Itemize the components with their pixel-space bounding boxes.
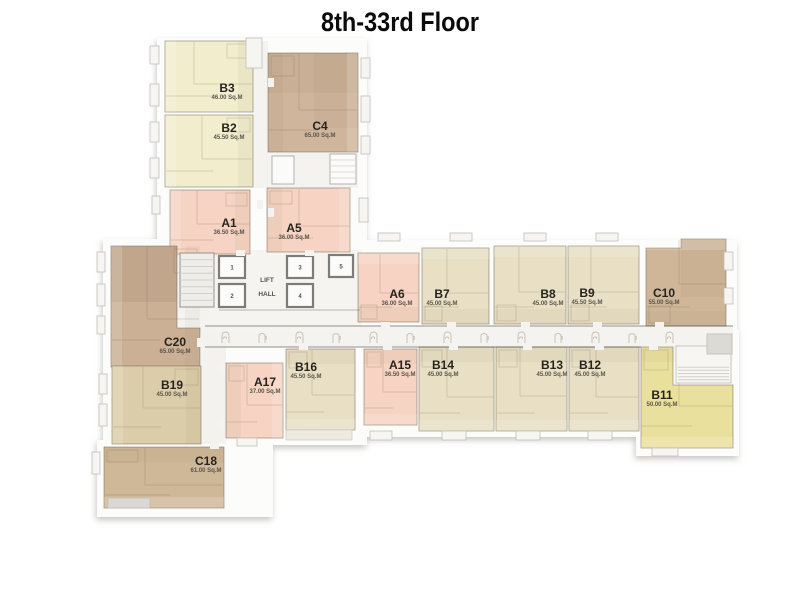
svg-text:B12: B12: [579, 358, 601, 372]
svg-text:HALL: HALL: [258, 291, 275, 298]
svg-text:65.00 Sq.M: 65.00 Sq.M: [159, 349, 190, 355]
svg-text:B11: B11: [651, 388, 673, 402]
svg-text:36.50 Sq.M: 36.50 Sq.M: [384, 372, 415, 378]
svg-text:61.00 Sq.M: 61.00 Sq.M: [190, 468, 221, 474]
svg-text:55.00 Sq.M: 55.00 Sq.M: [648, 300, 679, 306]
svg-text:8th-33rd Floor: 8th-33rd Floor: [321, 7, 479, 37]
svg-text:A6: A6: [389, 287, 405, 301]
svg-text:B9: B9: [579, 286, 595, 300]
svg-text:B13: B13: [541, 358, 563, 372]
svg-text:A17: A17: [254, 375, 276, 389]
svg-text:45.50 Sq.M: 45.50 Sq.M: [213, 135, 244, 141]
svg-text:37.00 Sq.M: 37.00 Sq.M: [249, 389, 280, 395]
svg-text:B19: B19: [161, 378, 183, 392]
svg-text:45.50 Sq.M: 45.50 Sq.M: [290, 374, 321, 380]
svg-text:50.00 Sq.M: 50.00 Sq.M: [646, 402, 677, 408]
svg-text:36.00 Sq.M: 36.00 Sq.M: [278, 235, 309, 241]
svg-text:45.00 Sq.M: 45.00 Sq.M: [427, 372, 458, 378]
svg-text:C20: C20: [164, 335, 186, 349]
svg-text:A1: A1: [221, 216, 237, 230]
svg-text:B3: B3: [219, 81, 235, 95]
svg-text:B2: B2: [221, 121, 237, 135]
svg-text:B14: B14: [432, 358, 454, 372]
svg-text:45.00 Sq.M: 45.00 Sq.M: [156, 392, 187, 398]
svg-text:C4: C4: [312, 119, 328, 133]
svg-text:B8: B8: [540, 287, 556, 301]
svg-text:45.00 Sq.M: 45.00 Sq.M: [574, 372, 605, 378]
svg-text:LIFT: LIFT: [260, 277, 274, 284]
svg-text:A15: A15: [389, 358, 411, 372]
svg-text:65.00 Sq.M: 65.00 Sq.M: [304, 133, 335, 139]
svg-text:A5: A5: [286, 221, 302, 235]
svg-text:45.00 Sq.M: 45.00 Sq.M: [426, 301, 457, 307]
svg-text:C10: C10: [653, 286, 675, 300]
svg-text:36.00 Sq.M: 36.00 Sq.M: [381, 301, 412, 307]
svg-text:36.50 Sq.M: 36.50 Sq.M: [213, 230, 244, 236]
svg-text:B16: B16: [295, 360, 317, 374]
svg-text:45.00 Sq.M: 45.00 Sq.M: [536, 372, 567, 378]
svg-text:45.00 Sq.M: 45.00 Sq.M: [532, 301, 563, 307]
svg-text:C18: C18: [195, 454, 217, 468]
svg-text:45.50 Sq.M: 45.50 Sq.M: [571, 300, 602, 306]
svg-text:B7: B7: [434, 287, 450, 301]
svg-text:46.00 Sq.M: 46.00 Sq.M: [211, 95, 242, 101]
